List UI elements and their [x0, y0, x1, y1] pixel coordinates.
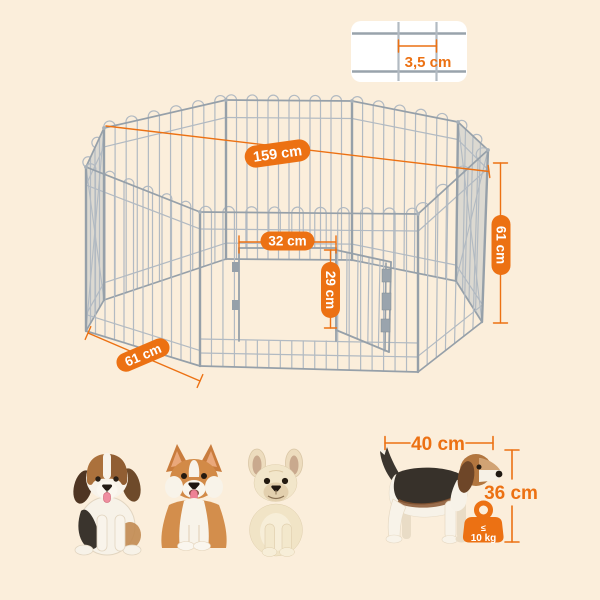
corgi-cheek [165, 476, 183, 498]
corgi-eye [201, 473, 207, 479]
kettlebell-weight-icon: ≤ 10 kg [463, 503, 504, 544]
size-guide: 40 cm 36 cm ≤ 10 kg [380, 434, 538, 544]
pen-wire [404, 112, 405, 271]
pen-rail [104, 243, 226, 283]
frenchie-eye [282, 478, 288, 484]
puppy-paw [123, 545, 141, 555]
puppy-paw [75, 545, 93, 555]
frenchie-paw [262, 548, 277, 557]
puppy-blaze [103, 453, 111, 479]
door-latch [382, 293, 391, 310]
pen-top-rail [226, 100, 352, 101]
door-height-label-pill: 29 cm [321, 262, 340, 318]
pen-top-rail [200, 212, 418, 214]
pen-rail [226, 117, 352, 118]
weight-limit-symbol: ≤ [481, 523, 486, 533]
pen-wire [357, 255, 358, 339]
pen-post-cap [224, 98, 228, 102]
frenchie-paw [280, 548, 295, 557]
pen-rail [200, 353, 418, 357]
pen-post-cap [416, 212, 420, 216]
wire-gap-label: 3,5 cm [405, 54, 452, 71]
door-frame [336, 330, 389, 352]
beagle-eye [477, 465, 482, 470]
corgi-chest [179, 498, 209, 548]
panel-height-label: 61 cm [493, 226, 508, 264]
pen-wire [394, 109, 395, 268]
panel-height-label-pill: 61 cm [492, 215, 511, 275]
door-hinge-bracket [232, 300, 239, 310]
corgi-cheek [205, 476, 223, 498]
diameter-label-pill: 159 cm [243, 138, 311, 169]
weight-handle [477, 503, 491, 517]
pen-panel-back-right [352, 97, 458, 281]
dog-length-label: 40 cm [411, 434, 465, 455]
pen-bottom-rail [226, 259, 352, 260]
weight-limit-label: 10 kg [471, 533, 497, 544]
puppy-eye [113, 476, 118, 481]
pen-wire [414, 114, 415, 273]
puppy-eye [95, 476, 100, 481]
wire-gap-inset: 3,5 cm [351, 21, 467, 82]
door-hinge-bracket [232, 262, 239, 272]
pen-post-cap [350, 99, 354, 103]
pen-post-cap [456, 120, 460, 124]
frenchie-eye [264, 478, 270, 484]
corgi-paw [194, 542, 211, 551]
corgi-paw [178, 542, 195, 551]
beagle-muzzle-top [479, 458, 500, 470]
dog-height-label: 36 cm [484, 483, 538, 504]
door-height-label: 29 cm [323, 271, 338, 309]
inset-card [351, 21, 467, 82]
product-infographic: 3,5 cm 159 cm 61 cm 32 [0, 0, 600, 600]
pen-post-cap [84, 165, 88, 169]
pen-wire [427, 205, 428, 365]
pen-wire [368, 257, 369, 343]
beagle-paw [386, 535, 402, 543]
beagle-nose [496, 471, 503, 478]
beagle-puppy-image [70, 453, 144, 555]
door-latch [382, 269, 391, 282]
door-width-label-pill: 32 cm [261, 232, 315, 251]
pen-post-cap [102, 126, 106, 130]
corgi-image [161, 444, 226, 551]
door-width-label: 32 cm [268, 234, 306, 249]
puppy-front-leg [115, 515, 125, 551]
pen-top-rail [104, 100, 226, 128]
dogs-group [70, 444, 302, 557]
door-latch [381, 319, 390, 332]
puppy-front-leg [97, 515, 107, 551]
pen-wire [436, 196, 438, 358]
pen-post-cap [486, 148, 490, 152]
pen-wire [378, 260, 380, 348]
pen-bottom-rail [200, 366, 418, 372]
french-bulldog-image [249, 449, 303, 557]
pen-post-cap [198, 210, 202, 214]
corgi-eye [181, 473, 187, 479]
pen-rail [104, 117, 226, 146]
pen-rail [200, 229, 418, 231]
pen-bottom-rail [104, 259, 226, 300]
puppy-tongue [104, 493, 111, 503]
pen-wire [425, 116, 426, 275]
